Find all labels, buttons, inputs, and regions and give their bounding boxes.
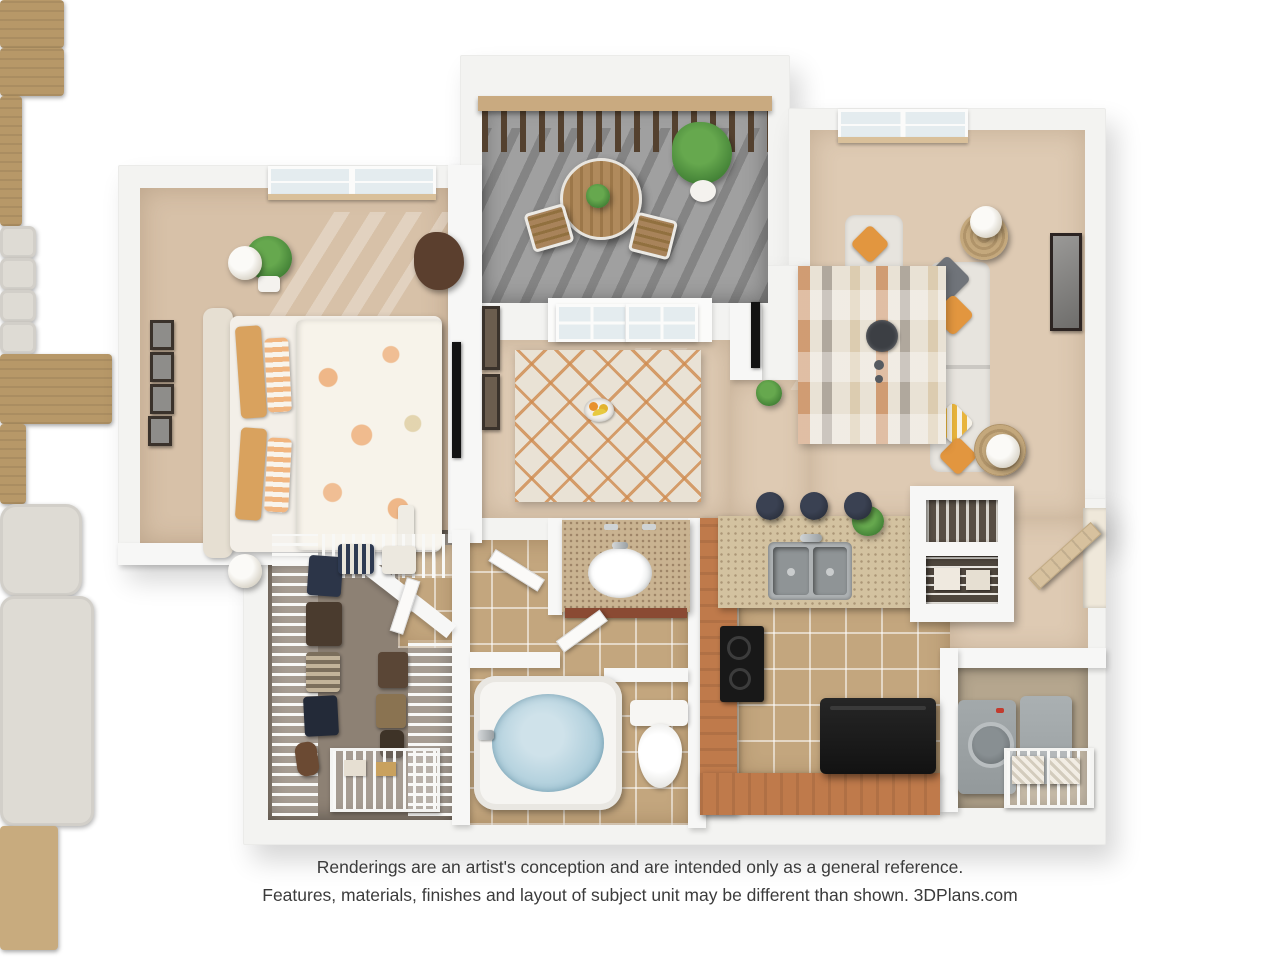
living-rug — [798, 266, 946, 444]
disclaimer-line1: Renderings are an artist's conception an… — [0, 853, 1280, 881]
hanging-clothes — [306, 602, 342, 646]
laundry-top-wall — [940, 648, 1106, 668]
toilet-half-wall — [604, 668, 688, 682]
balcony-palm-pot — [690, 180, 716, 202]
living-window-sill — [838, 137, 968, 143]
side-table-lamp — [970, 206, 1002, 238]
media-console — [0, 424, 26, 504]
hanging-clothes-striped — [306, 652, 340, 692]
bedroom-tv-console — [0, 96, 22, 226]
laundry-side-wall — [940, 648, 958, 812]
dining-wall-frame — [482, 374, 500, 430]
bedroom-window-sill — [268, 194, 436, 200]
laundry-basket — [1050, 758, 1080, 784]
bed-pillow-striped — [264, 337, 292, 412]
breakfast-bar-bottom — [700, 773, 940, 815]
refrigerator-handle — [830, 706, 926, 710]
bed-pillow-striped — [264, 437, 292, 512]
bedroom-tv — [452, 342, 461, 458]
shoe-basket-rack — [330, 748, 440, 812]
hanging-clothes-striped — [338, 544, 374, 574]
french-door-glass — [556, 304, 628, 342]
bed-headboard — [203, 308, 233, 558]
vanity-cabinet-front — [565, 608, 687, 618]
nightstand-lamp — [228, 246, 262, 280]
dining-chair — [0, 226, 36, 258]
vanity-faucet — [612, 542, 628, 549]
dining-wall-frame — [482, 306, 500, 370]
closet-right-wall — [452, 530, 470, 825]
vanity-sconce — [642, 524, 656, 530]
gallery-frame — [150, 320, 174, 350]
pantry-vent-opening — [926, 500, 998, 542]
coffee-table-tray — [866, 320, 898, 352]
tub-water — [492, 694, 604, 792]
tubroom-wall — [470, 652, 560, 668]
dining-table — [0, 354, 112, 424]
nightstand-lamp — [228, 554, 262, 588]
entry-door-opening — [1083, 508, 1106, 608]
dining-chair — [0, 322, 36, 354]
basket-item — [376, 762, 396, 776]
balcony-railing-toprail — [478, 96, 772, 111]
gallery-frame — [150, 384, 174, 414]
side-table-lamp — [986, 434, 1020, 468]
nightstand — [0, 48, 64, 96]
bar-stool — [756, 492, 784, 520]
bedroom-plant-pot — [258, 276, 280, 292]
media-plant — [756, 380, 782, 406]
gallery-frame — [148, 416, 172, 446]
laundry-basket — [1012, 756, 1044, 784]
living-wall-art — [1050, 233, 1082, 331]
bistro-table-plant — [586, 184, 610, 208]
cooktop-burner — [727, 636, 751, 660]
hanging-clothes — [376, 694, 406, 728]
vanity-sconce — [604, 524, 618, 530]
basket-item — [344, 760, 366, 776]
living-tv — [751, 302, 760, 368]
bar-stool — [844, 492, 872, 520]
decanter — [874, 360, 884, 370]
floorplan-rendering: Renderings are an artist's conception an… — [0, 0, 1280, 960]
vanity-side-wall — [548, 518, 562, 615]
sink-drain — [787, 568, 795, 576]
hanging-clothes — [378, 652, 408, 688]
pantry-box — [934, 568, 960, 590]
gallery-frame — [150, 352, 174, 382]
cooktop-burner — [729, 668, 751, 690]
sofa — [0, 596, 94, 826]
bar-stool — [800, 492, 828, 520]
disclaimer: Renderings are an artist's conception an… — [0, 853, 1280, 909]
vanity-sink — [588, 548, 652, 598]
tub-faucet — [478, 730, 494, 740]
toilet-tank — [630, 700, 688, 726]
accent-chair — [414, 232, 464, 290]
pantry-box — [966, 570, 990, 590]
sink-drain — [826, 568, 834, 576]
bed-comforter — [296, 320, 442, 550]
armchair — [0, 504, 82, 596]
balcony-palm — [672, 122, 732, 184]
kitchen-faucet — [800, 534, 822, 542]
disclaimer-line2: Features, materials, finishes and layout… — [0, 881, 1280, 909]
hanging-clothes — [382, 546, 416, 574]
dining-rug — [515, 350, 701, 502]
nightstand — [0, 0, 64, 48]
hanging-clothes — [303, 695, 339, 737]
dining-chair — [0, 258, 36, 290]
dining-chair — [0, 290, 36, 322]
french-door-glass — [626, 304, 698, 342]
washer-indicator — [996, 708, 1004, 713]
